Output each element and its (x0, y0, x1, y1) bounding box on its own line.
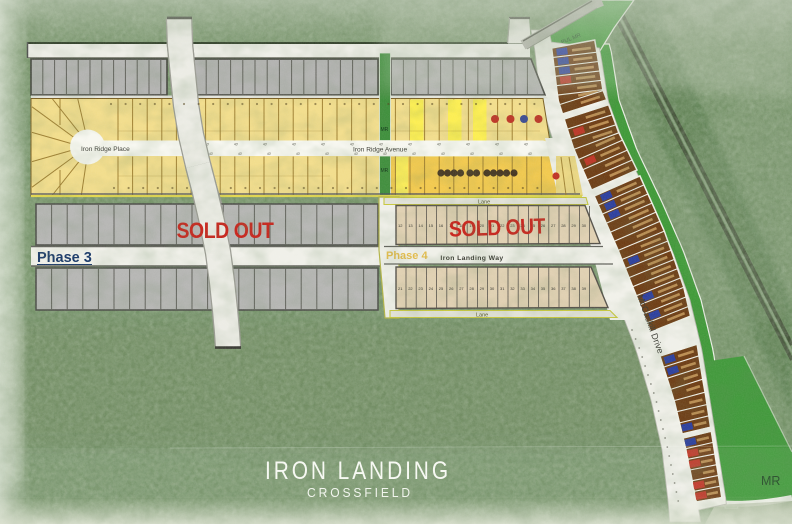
svg-text:CROSSFIELD: CROSSFIELD (307, 486, 413, 500)
svg-text:IRON LANDING: IRON LANDING (265, 457, 451, 485)
